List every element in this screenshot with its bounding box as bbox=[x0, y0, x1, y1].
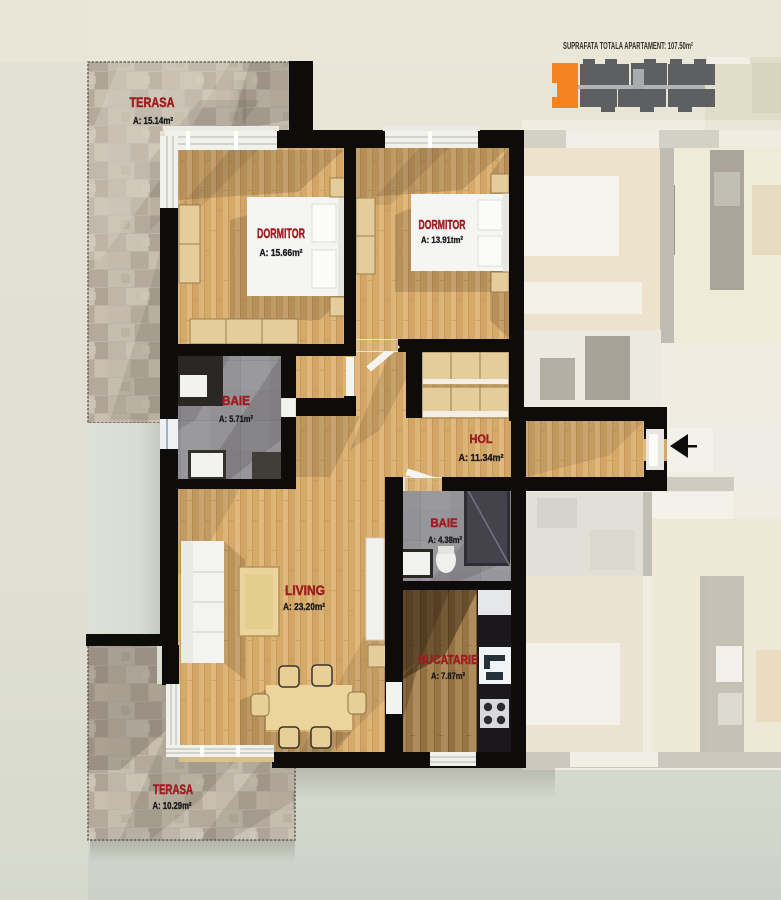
svg-text:BUCATARIE: BUCATARIE bbox=[418, 653, 478, 667]
svg-text:DORMITOR: DORMITOR bbox=[419, 217, 466, 232]
svg-text:BAIE: BAIE bbox=[222, 394, 250, 408]
svg-text:A: 11.34m²: A: 11.34m² bbox=[459, 453, 505, 464]
svg-text:A: 15.14m²: A: 15.14m² bbox=[133, 116, 174, 127]
svg-text:A: 5.71m²: A: 5.71m² bbox=[219, 414, 253, 425]
svg-text:LIVING: LIVING bbox=[285, 582, 325, 598]
svg-text:A: 4.38m²: A: 4.38m² bbox=[428, 535, 462, 546]
svg-text:A: 7.87m²: A: 7.87m² bbox=[431, 671, 465, 682]
svg-text:A: 15.66m²: A: 15.66m² bbox=[260, 247, 303, 259]
svg-text:HOL: HOL bbox=[470, 432, 493, 446]
svg-text:BAIE: BAIE bbox=[431, 516, 458, 530]
svg-text:TERASA: TERASA bbox=[130, 94, 175, 110]
svg-text:TERASA: TERASA bbox=[153, 782, 193, 797]
svg-text:A: 13.91tm²: A: 13.91tm² bbox=[421, 235, 463, 246]
svg-text:A: 10.29m²: A: 10.29m² bbox=[153, 801, 193, 812]
svg-text:SUPRAFATA TOTALA APARTAMENT: 1: SUPRAFATA TOTALA APARTAMENT: 107.50m² bbox=[563, 41, 693, 52]
svg-text:A: 23.20m²: A: 23.20m² bbox=[283, 602, 326, 613]
svg-text:DORMITOR: DORMITOR bbox=[257, 225, 305, 241]
